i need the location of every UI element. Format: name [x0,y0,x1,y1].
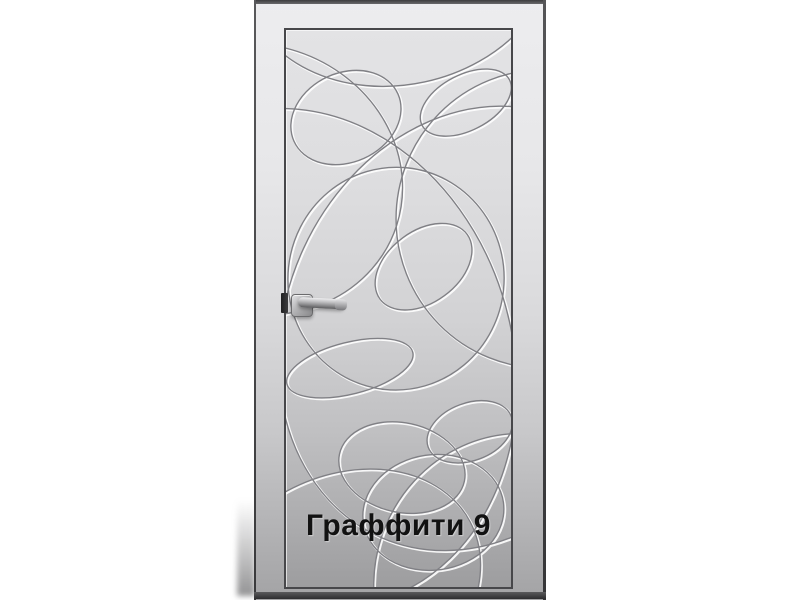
door-right-edge [543,0,546,600]
graffiti-pattern [286,30,511,587]
product-title: Граффити 9 [284,509,513,543]
door-shadow [237,500,255,596]
door-leaf: Граффити 9 [254,0,546,600]
door-left-edge [254,0,256,600]
door-bottom-edge [254,592,546,599]
lock-plate [281,293,288,313]
page-background: Граффити 9 [0,0,800,600]
door-top-edge [254,0,546,4]
door-panel [284,28,513,589]
